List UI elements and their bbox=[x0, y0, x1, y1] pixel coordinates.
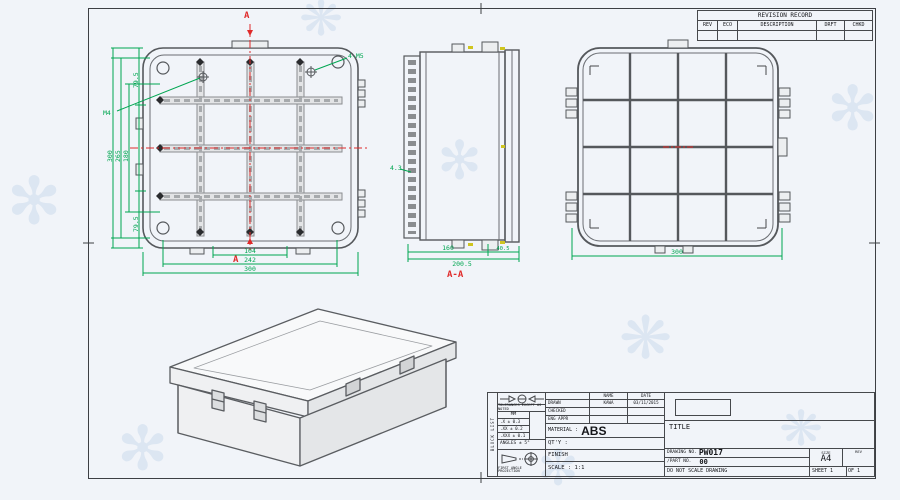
company-box bbox=[664, 392, 875, 421]
title-box: TITLE bbox=[664, 420, 875, 449]
description-empty-cell bbox=[737, 30, 817, 41]
rev-empty-cell bbox=[697, 30, 718, 41]
rev-cell: REV bbox=[842, 448, 875, 467]
dim-left-top-seg: 79.5 bbox=[132, 72, 140, 88]
eco-empty-cell bbox=[717, 30, 738, 41]
chkd-empty-cell bbox=[844, 30, 873, 41]
do-not-scale-cell: DO NOT SCALE DRAWING bbox=[664, 466, 810, 477]
rear-view: 300 bbox=[566, 40, 790, 260]
dim-left-inner: 180 bbox=[122, 150, 130, 162]
title-block: BLOCK LIST TOLERANCES EXCEPT AS NOTED MM… bbox=[487, 392, 875, 477]
part-no-value: 00 bbox=[699, 459, 707, 466]
callout-4m5: 4-M5 bbox=[348, 52, 364, 60]
latch-details bbox=[452, 42, 498, 250]
drawing-canvas: ✻ ❋ ✻ ❋ ✻ ✻ ❋ ✻ bbox=[0, 0, 900, 500]
dim-left-mid: 265 bbox=[114, 150, 122, 162]
scale-row: SCALE : 1:1 bbox=[545, 461, 665, 477]
dim-bottom-mid: 242 bbox=[244, 256, 256, 264]
isometric-view bbox=[170, 309, 456, 466]
section-view-label: A-A bbox=[447, 270, 464, 280]
material-label: MATERIAL : bbox=[548, 428, 578, 433]
dim-left-bottom-seg: 79.5 bbox=[132, 216, 140, 232]
drawing-no-value: PW017 bbox=[699, 449, 723, 457]
of-cell: OF 1 bbox=[846, 466, 875, 477]
tolerance-side-cell bbox=[529, 411, 546, 440]
front-view: A A bbox=[103, 11, 370, 276]
callout-m4: M4 bbox=[103, 109, 111, 117]
drft-empty-cell bbox=[816, 30, 845, 41]
projection-label: FIRST ANGLE PROJECTION bbox=[498, 467, 545, 474]
dim-bottom-outer: 300 bbox=[244, 265, 256, 273]
side-label: BLOCK LIST bbox=[491, 417, 495, 451]
first-angle-symbol bbox=[499, 451, 545, 467]
rear-dim-width: 300 bbox=[671, 248, 683, 256]
material-row: MATERIAL : ABS bbox=[545, 423, 665, 438]
callout-hole: 4.3 bbox=[390, 164, 402, 172]
company-logo-box bbox=[675, 399, 731, 416]
foot bbox=[296, 248, 310, 254]
size-value: A4 bbox=[821, 455, 832, 464]
dim-lid: 40.5 bbox=[496, 246, 509, 252]
material-value: ABS bbox=[581, 425, 606, 437]
dim-body: 160 bbox=[442, 244, 454, 252]
dim-left-outer: 300 bbox=[106, 150, 114, 162]
part-no-label: /PART NO. bbox=[667, 460, 691, 465]
section-label-top: A bbox=[244, 11, 250, 21]
dim-total: 200.5 bbox=[452, 260, 472, 268]
foot bbox=[190, 248, 204, 254]
front-dim-labels: 300 265 180 79.5 79.5 104 242 300 M4 4-M… bbox=[103, 52, 364, 273]
projection-area: FIRST ANGLE PROJECTION bbox=[497, 449, 546, 477]
drawing-no-label: DRAWING NO. bbox=[667, 451, 697, 456]
sheet-cell: SHEET 1 bbox=[809, 466, 847, 477]
projection-symbol-small bbox=[499, 393, 545, 404]
section-view: 160 40.5 200.5 4.3 A-A bbox=[390, 42, 519, 280]
dim-bottom-inner: 104 bbox=[244, 247, 256, 255]
size-cell: SIZE A4 bbox=[809, 448, 843, 467]
section-arrow-top bbox=[247, 30, 253, 36]
revision-table: REVISION RECORD REV ECO DESCRIPTION DRFT… bbox=[697, 10, 873, 41]
